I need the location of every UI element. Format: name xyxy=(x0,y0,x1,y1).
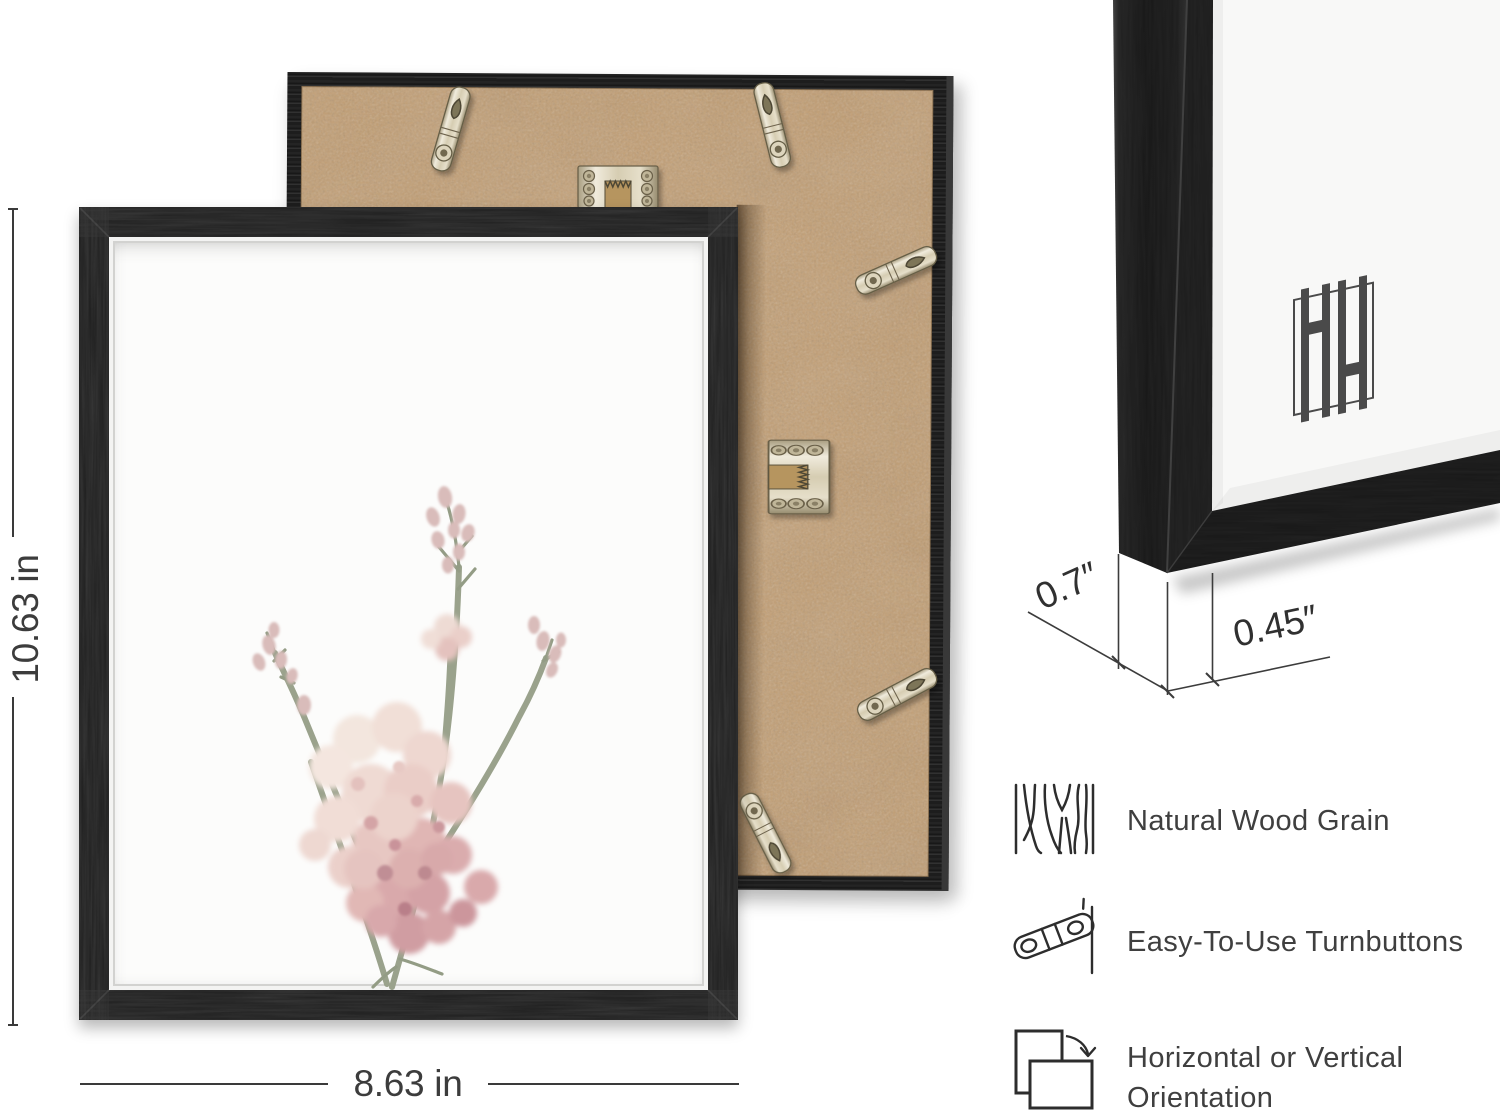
svg-text:0.7″: 0.7″ xyxy=(1029,554,1105,618)
svg-text:0.45″: 0.45″ xyxy=(1230,597,1322,655)
